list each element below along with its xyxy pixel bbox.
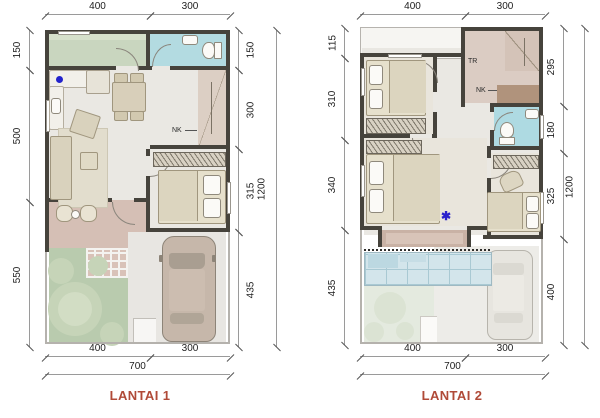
dim-plan2-top-400: 400 xyxy=(360,14,465,15)
kitchen-appliance xyxy=(86,70,110,94)
dim-label: 435 xyxy=(327,279,338,296)
bed-pillow xyxy=(369,89,383,109)
balcony-wall xyxy=(378,226,382,247)
blue-asterisk-marker: ✱ xyxy=(441,210,451,222)
toilet-icon xyxy=(500,122,514,138)
plan2-dashed-roofline xyxy=(364,249,490,251)
dim-label: 1200 xyxy=(256,177,267,199)
wardrobe xyxy=(153,152,226,167)
blue-dot-marker xyxy=(56,76,63,83)
window xyxy=(227,182,231,214)
bed-pillow xyxy=(526,196,539,212)
bed-pillow xyxy=(369,65,383,85)
site-edge xyxy=(360,230,362,343)
car xyxy=(162,236,216,342)
site-edge xyxy=(228,232,230,343)
dim-plan1-right-315: 315 xyxy=(238,149,239,232)
dim-label: 300 xyxy=(182,343,199,354)
dim-plan2-left-115: 115 xyxy=(344,28,345,58)
wardrobe xyxy=(493,155,539,169)
window xyxy=(58,31,90,35)
plan2-title: LANTAI 2 xyxy=(377,388,527,403)
dim-label: 400 xyxy=(89,1,106,12)
dim-label: 400 xyxy=(404,1,421,12)
dining-chair xyxy=(130,73,144,83)
wall xyxy=(360,226,378,230)
wall xyxy=(138,66,152,70)
tree-small xyxy=(88,256,108,276)
dim-label: 500 xyxy=(12,128,23,145)
plan2-note-leader xyxy=(488,90,497,91)
car-rear-glass xyxy=(170,313,204,324)
ghost-car xyxy=(487,250,533,340)
dim-label: 700 xyxy=(444,361,461,372)
wall xyxy=(487,146,543,150)
bed xyxy=(366,60,426,116)
dim-plan2-right-180: 180 xyxy=(563,106,564,153)
wall xyxy=(146,228,230,232)
wall xyxy=(45,30,49,252)
plan1-stairs-note: NK xyxy=(172,127,182,134)
wall xyxy=(146,30,150,70)
bed-pillow xyxy=(203,198,221,218)
plan1-note-leader xyxy=(185,130,197,131)
dim-plan1-right-300: 300 xyxy=(238,70,239,149)
terrace-table xyxy=(71,210,80,219)
bed-pillow xyxy=(369,161,384,185)
wall xyxy=(150,145,226,149)
dim-plan2-right-400: 400 xyxy=(563,239,564,345)
window xyxy=(388,54,422,58)
plan2-canopy-tint xyxy=(368,254,398,268)
ghost-car-rear-glass xyxy=(494,313,523,323)
dim-label: 300 xyxy=(182,1,199,12)
dim-plan1-right-435: 435 xyxy=(238,232,239,347)
floorplan-sheet: NK 400 300 150 500 550 150 300 315 435 1… xyxy=(0,0,600,418)
window xyxy=(361,165,365,197)
tree-medium xyxy=(48,258,74,284)
dim-plan1-top-300: 300 xyxy=(150,14,230,15)
dim-label: 180 xyxy=(546,121,557,138)
dim-plan2-bottom-total-700: 700 xyxy=(360,374,545,375)
plan2-balcony-inner xyxy=(386,233,463,244)
plan2-stairs-note-upper: TR xyxy=(468,58,477,65)
bed-blanket xyxy=(159,171,198,221)
dim-label: 150 xyxy=(12,42,23,59)
ghost-car-windshield xyxy=(493,263,524,275)
dim-plan2-left-435: 435 xyxy=(344,230,345,345)
car-roof xyxy=(169,269,205,311)
window xyxy=(540,115,544,139)
dim-plan1-right-150: 150 xyxy=(238,30,239,70)
bed xyxy=(366,154,440,224)
plan2-stairs-fan xyxy=(505,31,539,71)
wall xyxy=(146,149,150,156)
site-edge xyxy=(45,342,230,344)
toilet-tank xyxy=(214,42,222,59)
terrace-chair xyxy=(80,205,97,222)
wall xyxy=(146,176,150,232)
dining-chair xyxy=(130,111,144,121)
plan2-stairs-landing xyxy=(497,85,539,103)
plan2-canopy-tint2 xyxy=(400,254,426,262)
dim-plan1-bottom-300: 300 xyxy=(150,356,230,357)
toilet-tank xyxy=(499,137,515,145)
dim-label: 300 xyxy=(497,343,514,354)
coffee-table xyxy=(80,152,98,170)
window xyxy=(361,68,365,96)
dim-label: 400 xyxy=(404,343,421,354)
plan1-stairs-diagonal xyxy=(198,70,226,149)
car-mirror-left xyxy=(159,255,163,262)
car-mirror-right xyxy=(212,255,216,262)
dim-label: 300 xyxy=(246,101,257,118)
dim-label: 700 xyxy=(129,361,146,372)
bed-pillow xyxy=(526,213,539,229)
site-edge xyxy=(45,252,47,343)
plan2-stairs-note-lower: NK xyxy=(476,87,486,94)
wall xyxy=(487,150,491,158)
dim-label: 295 xyxy=(546,59,557,76)
bed-pillow xyxy=(203,175,221,195)
plan2-ghost-step xyxy=(420,316,437,344)
dim-plan1-bottom-total-700: 700 xyxy=(45,374,230,375)
bed xyxy=(158,170,226,224)
dim-plan2-top-300: 300 xyxy=(465,14,545,15)
dim-plan1-right-total-1200: 1200 xyxy=(276,30,277,347)
dining-chair xyxy=(114,111,128,121)
dim-label: 325 xyxy=(546,188,557,205)
tree-inner xyxy=(58,292,92,326)
plan1-stairs-arrow xyxy=(211,82,212,134)
dim-plan2-bottom-300: 300 xyxy=(465,356,545,357)
wall xyxy=(461,27,465,107)
dim-label: 1200 xyxy=(564,175,575,197)
dim-label: 300 xyxy=(497,1,514,12)
bed-blanket xyxy=(389,61,426,113)
site-edge xyxy=(360,342,543,344)
dining-table xyxy=(112,82,146,112)
dim-label: 310 xyxy=(327,91,338,108)
bed-blanket xyxy=(393,155,440,221)
dining-chair xyxy=(114,73,128,83)
car-windshield xyxy=(169,253,205,269)
dim-plan2-right-295: 295 xyxy=(563,28,564,106)
dim-plan1-left-150: 150 xyxy=(29,30,30,70)
dim-label: 400 xyxy=(546,284,557,301)
dim-plan1-left-500: 500 xyxy=(29,70,30,202)
plan2-stairs-arrow xyxy=(524,38,525,66)
ghost-tree xyxy=(396,322,414,340)
bed xyxy=(487,192,541,232)
dim-plan2-left-340: 340 xyxy=(344,140,345,230)
dim-label: 400 xyxy=(89,343,106,354)
plan1-driveway-step xyxy=(133,318,156,344)
wall xyxy=(461,27,543,31)
wall xyxy=(170,66,226,70)
wall xyxy=(490,103,494,112)
ghost-tree xyxy=(364,322,384,342)
dim-plan1-left-550: 550 xyxy=(29,202,30,347)
tree-large xyxy=(48,282,102,336)
ghost-car-roof xyxy=(493,275,524,311)
dim-plan2-bottom-400: 400 xyxy=(360,356,465,357)
dim-label: 340 xyxy=(327,177,338,194)
dim-plan2-left-310: 310 xyxy=(344,58,345,140)
ghost-tree xyxy=(374,292,406,324)
bed-pillow xyxy=(369,189,384,213)
wall xyxy=(360,134,410,138)
plan1-title: LANTAI 1 xyxy=(65,388,215,403)
wall xyxy=(134,198,146,202)
dim-plan1-top-400: 400 xyxy=(45,14,150,15)
bed-blanket xyxy=(488,193,523,229)
wardrobe xyxy=(366,140,422,154)
kitchen-sink xyxy=(51,98,61,114)
dim-label: 550 xyxy=(12,266,23,283)
dim-plan1-bottom-400: 400 xyxy=(45,356,150,357)
dim-label: 435 xyxy=(246,281,257,298)
wardrobe xyxy=(366,118,426,134)
dim-label: 150 xyxy=(246,42,257,59)
dim-label: 315 xyxy=(246,182,257,199)
site-edge xyxy=(541,239,543,343)
sink-icon xyxy=(182,35,198,45)
wall xyxy=(490,103,543,107)
dim-label: 115 xyxy=(328,35,339,51)
sink-icon xyxy=(525,109,539,119)
wall xyxy=(483,235,543,239)
dim-plan2-right-total-1200: 1200 xyxy=(584,28,585,345)
sofa xyxy=(50,136,72,200)
